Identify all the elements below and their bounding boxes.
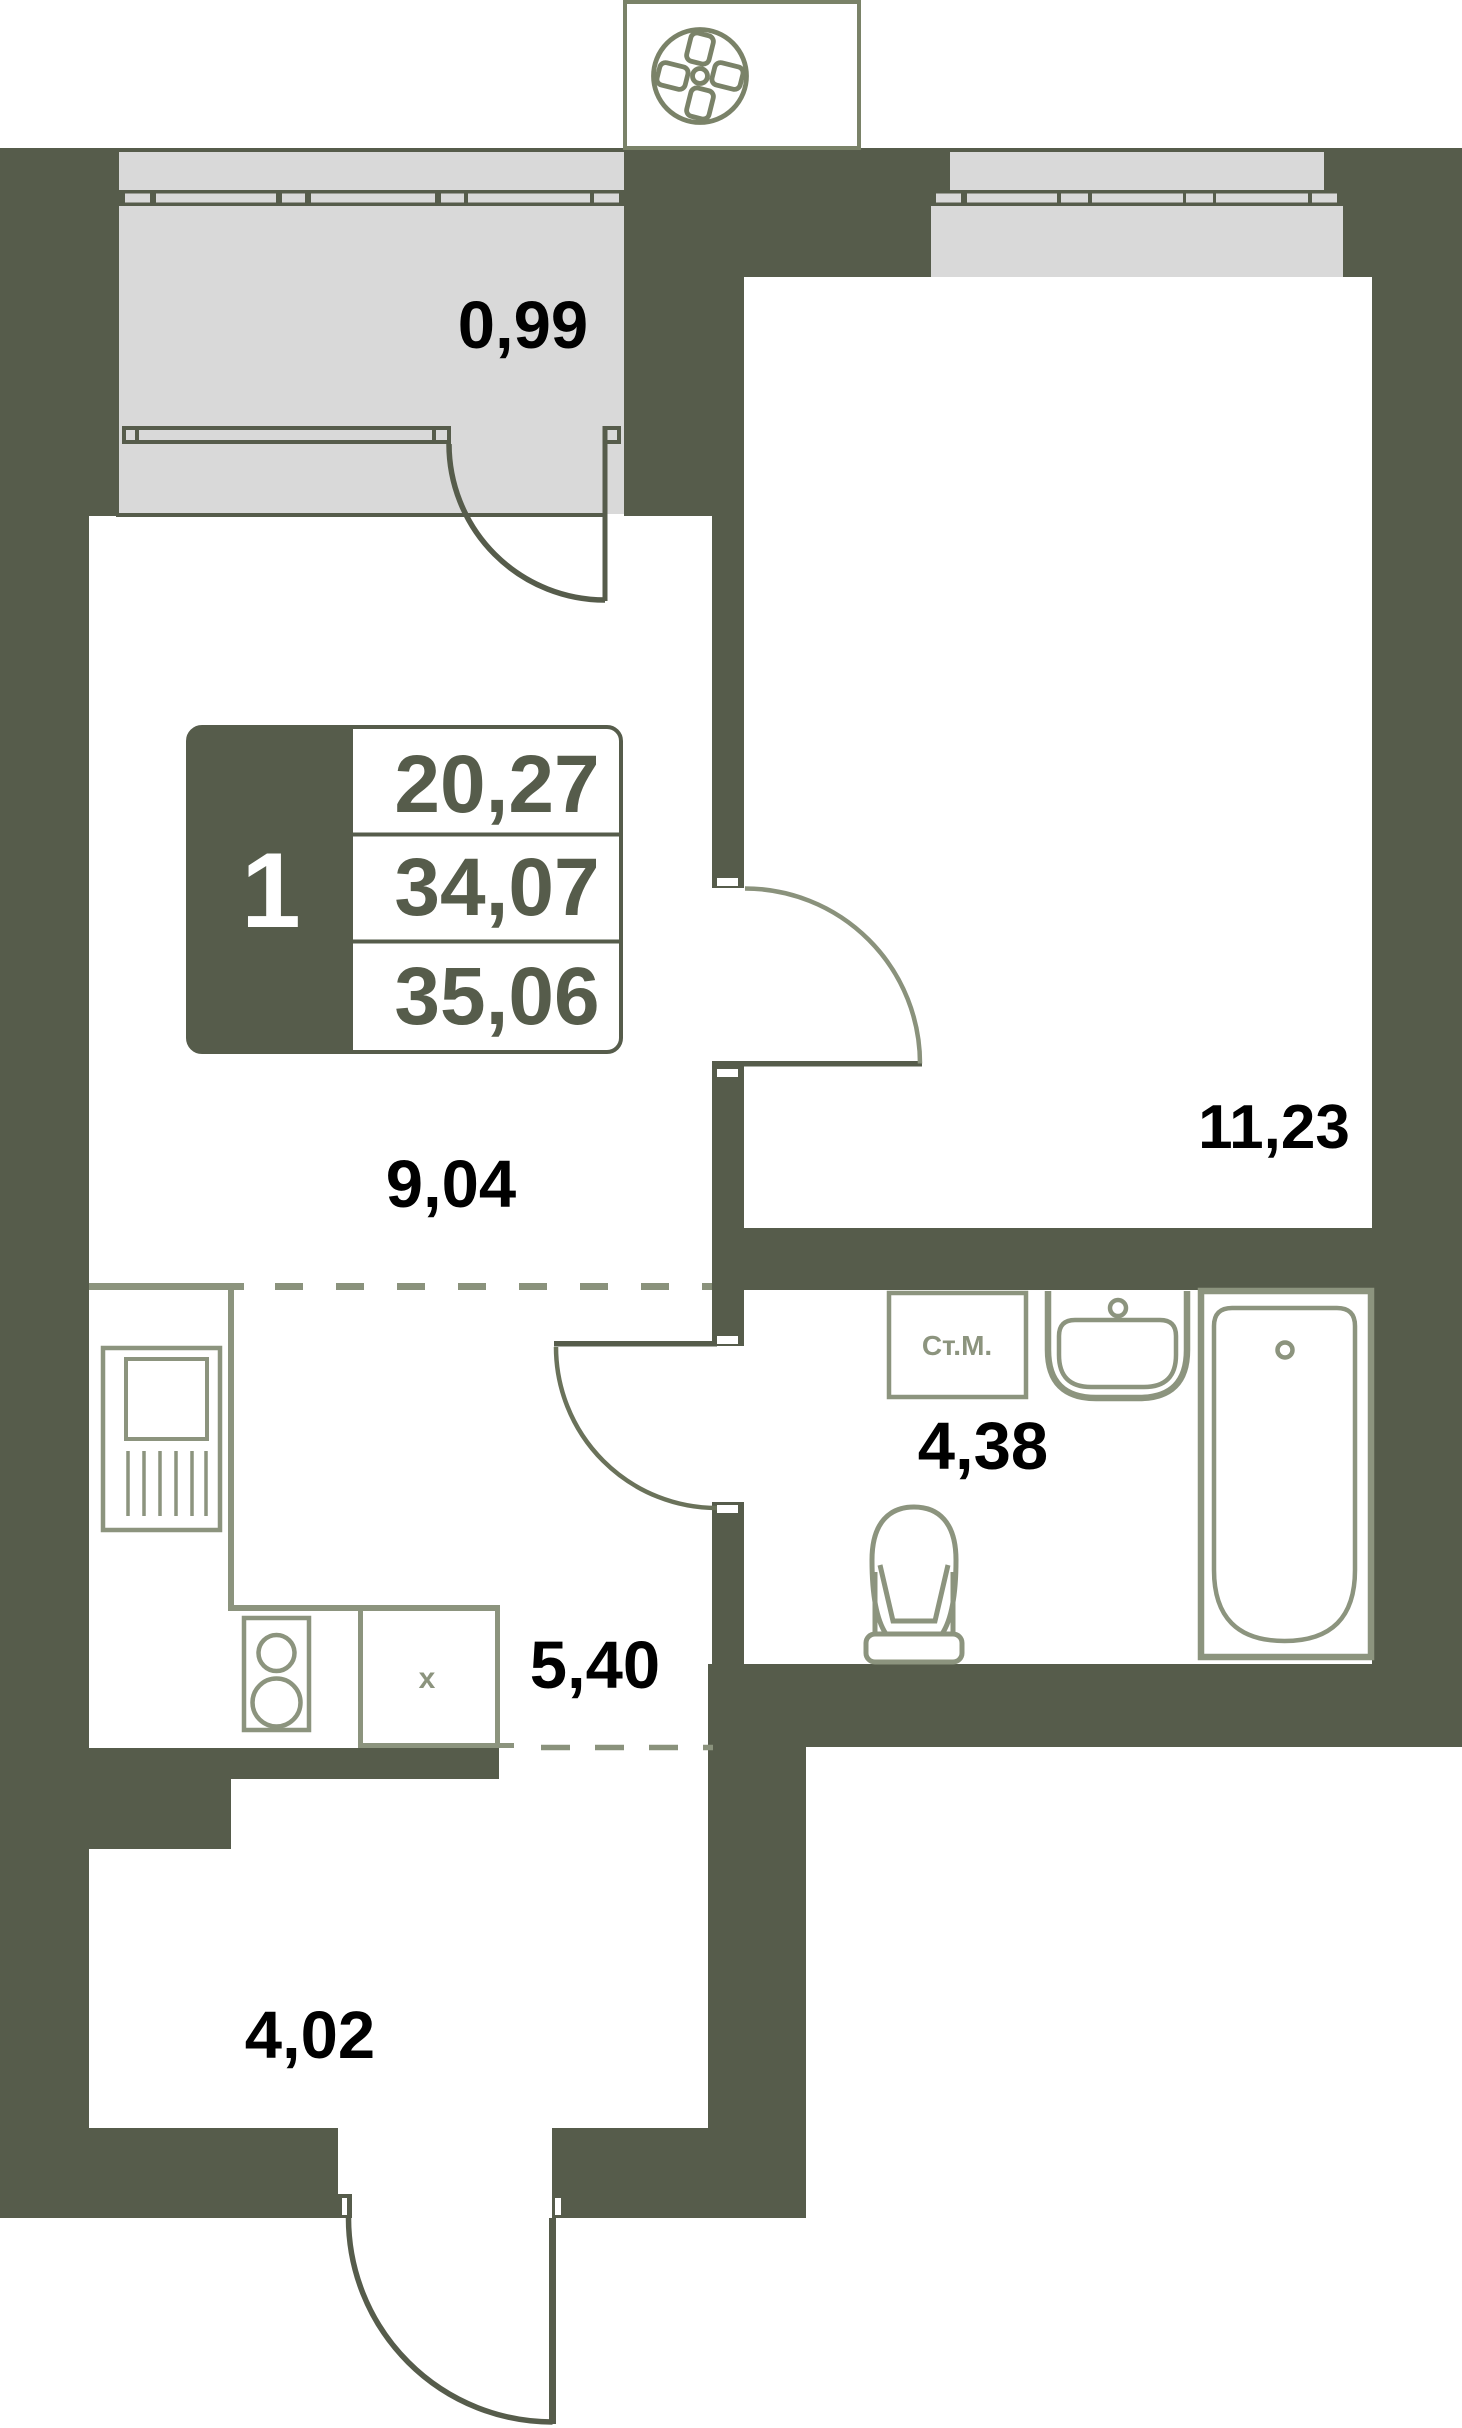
svg-text:Ст.М.: Ст.М. (922, 1330, 992, 1361)
svg-text:9,04: 9,04 (386, 1147, 516, 1222)
svg-text:34,07: 34,07 (394, 842, 599, 933)
svg-text:11,23: 11,23 (1198, 1093, 1350, 1162)
svg-text:35,06: 35,06 (394, 951, 599, 1042)
svg-text:x: x (419, 1662, 436, 1695)
svg-text:20,27: 20,27 (394, 739, 599, 830)
svg-text:1: 1 (241, 830, 301, 950)
svg-text:4,02: 4,02 (245, 1998, 375, 2073)
svg-text:5,40: 5,40 (530, 1628, 660, 1703)
svg-text:0,99: 0,99 (458, 288, 588, 363)
svg-text:4,38: 4,38 (918, 1409, 1048, 1484)
